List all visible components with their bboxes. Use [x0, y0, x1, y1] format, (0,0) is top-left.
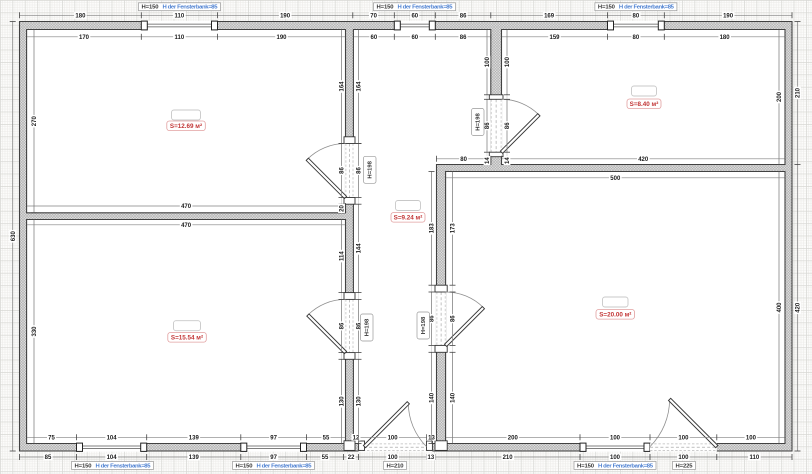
svg-text:60: 60 [411, 35, 418, 41]
svg-text:180: 180 [720, 35, 731, 41]
svg-text:130: 130 [340, 396, 346, 407]
svg-text:100: 100 [746, 436, 757, 442]
svg-text:86: 86 [505, 122, 511, 129]
svg-text:420: 420 [638, 157, 649, 163]
svg-text:190: 190 [276, 35, 287, 41]
svg-text:86: 86 [357, 167, 363, 174]
svg-text:22: 22 [348, 455, 355, 461]
svg-text:80: 80 [460, 157, 467, 163]
svg-text:110: 110 [750, 455, 760, 461]
svg-text:H=150: H=150 [377, 5, 395, 11]
svg-text:H=225: H=225 [676, 463, 694, 469]
svg-text:470: 470 [181, 204, 192, 210]
svg-text:75: 75 [48, 436, 55, 442]
svg-text:110: 110 [175, 35, 185, 41]
svg-text:130: 130 [357, 396, 363, 407]
svg-text:80: 80 [633, 35, 640, 41]
svg-text:100: 100 [505, 56, 511, 67]
svg-text:86: 86 [460, 35, 467, 41]
svg-text:S=12.69 м²: S=12.69 м² [170, 123, 202, 130]
svg-text:190: 190 [723, 14, 734, 20]
svg-text:144: 144 [357, 243, 363, 254]
svg-text:55: 55 [323, 436, 330, 442]
svg-text:270: 270 [32, 116, 38, 127]
svg-text:140: 140 [430, 392, 436, 403]
svg-text:H der Fensterbank=85: H der Fensterbank=85 [163, 5, 219, 11]
svg-text:100: 100 [610, 455, 621, 461]
svg-text:H der Fensterbank=85: H der Fensterbank=85 [257, 463, 313, 469]
svg-text:114: 114 [340, 251, 346, 261]
svg-text:200: 200 [508, 436, 519, 442]
svg-text:97: 97 [270, 436, 277, 442]
svg-text:86: 86 [340, 167, 346, 174]
svg-text:S=20.00 м²: S=20.00 м² [599, 312, 631, 319]
svg-text:H=150: H=150 [236, 463, 254, 469]
svg-text:100: 100 [678, 436, 689, 442]
svg-text:110: 110 [175, 14, 185, 20]
svg-text:630: 630 [11, 231, 17, 242]
svg-text:100: 100 [388, 436, 399, 442]
svg-text:H=150: H=150 [598, 5, 616, 11]
svg-text:14: 14 [505, 157, 511, 164]
svg-text:140: 140 [451, 392, 457, 403]
svg-text:H=198: H=198 [365, 318, 371, 336]
svg-text:210: 210 [503, 455, 514, 461]
svg-text:80: 80 [633, 14, 640, 20]
svg-text:170: 170 [79, 35, 90, 41]
svg-text:180: 180 [75, 14, 86, 20]
svg-text:420: 420 [796, 302, 802, 313]
svg-text:210: 210 [796, 87, 802, 98]
svg-text:104: 104 [107, 436, 118, 442]
svg-text:55: 55 [322, 455, 329, 461]
svg-text:H der Fensterbank=85: H der Fensterbank=85 [398, 5, 454, 11]
svg-text:100: 100 [388, 455, 399, 461]
svg-text:70: 70 [370, 14, 377, 20]
svg-text:H=150: H=150 [75, 463, 93, 469]
svg-text:164: 164 [340, 81, 346, 92]
svg-text:100: 100 [678, 455, 689, 461]
svg-text:85: 85 [45, 455, 52, 461]
svg-text:169: 169 [544, 14, 555, 20]
svg-text:139: 139 [189, 455, 200, 461]
svg-text:S=15.54 м²: S=15.54 м² [171, 335, 203, 342]
svg-text:H der Fensterbank=85: H der Fensterbank=85 [598, 463, 654, 469]
svg-text:330: 330 [32, 326, 38, 337]
svg-text:190: 190 [280, 14, 291, 20]
svg-text:183: 183 [430, 223, 436, 234]
svg-text:470: 470 [181, 223, 192, 229]
svg-text:H der Fensterbank=85: H der Fensterbank=85 [96, 463, 152, 469]
svg-text:86: 86 [430, 315, 436, 322]
svg-text:13: 13 [428, 455, 435, 461]
svg-text:S=9.24 м²: S=9.24 м² [394, 215, 423, 222]
svg-text:H=198: H=198 [368, 160, 374, 178]
svg-text:S=8.40 м²: S=8.40 м² [630, 101, 659, 108]
svg-text:86: 86 [460, 14, 467, 20]
svg-text:86: 86 [485, 122, 491, 129]
svg-text:H=210: H=210 [387, 463, 405, 469]
svg-text:H=150: H=150 [577, 463, 595, 469]
svg-text:60: 60 [371, 35, 378, 41]
svg-text:173: 173 [451, 223, 457, 234]
svg-text:H=198: H=198 [421, 316, 427, 334]
svg-text:100: 100 [610, 436, 621, 442]
svg-text:14: 14 [485, 157, 491, 164]
svg-text:86: 86 [340, 322, 346, 329]
svg-text:H=150: H=150 [142, 5, 160, 11]
svg-text:20: 20 [340, 205, 346, 212]
svg-text:104: 104 [107, 455, 118, 461]
svg-text:100: 100 [485, 56, 491, 67]
svg-text:12: 12 [353, 436, 360, 442]
svg-text:H=198: H=198 [476, 113, 482, 131]
svg-text:400: 400 [777, 302, 783, 313]
svg-text:97: 97 [270, 455, 277, 461]
svg-text:164: 164 [357, 81, 363, 92]
svg-text:60: 60 [411, 14, 418, 20]
svg-text:159: 159 [549, 35, 560, 41]
svg-text:200: 200 [777, 91, 783, 102]
svg-text:H der Fensterbank=85: H der Fensterbank=85 [619, 5, 675, 11]
svg-text:500: 500 [610, 176, 621, 182]
svg-text:86: 86 [451, 315, 457, 322]
svg-text:139: 139 [189, 436, 200, 442]
